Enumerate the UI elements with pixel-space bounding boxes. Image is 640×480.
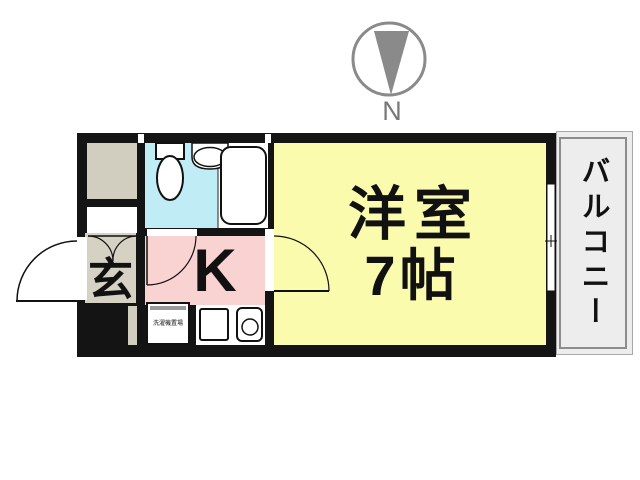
balcony-label: バルコニー [572,156,614,331]
kitchen-area: K [145,236,265,305]
pipe-shaft-strip [128,306,137,345]
shoe-cabinet [87,207,137,233]
kitchen-label: K [173,241,236,301]
balcony-inner-border: バルコニー [559,137,627,349]
bathtub-zone [218,143,268,228]
closet-area [87,143,137,199]
main-room: 洋室 7帖 [274,143,546,345]
north-label: N [377,96,407,127]
entrance-label: 玄 [85,256,136,303]
compass-circle-icon [353,23,425,95]
entrance-genkan: 玄 [85,233,136,303]
washing-machine-label: 洗濯機置場 [148,321,188,327]
main-room-size: 7帖 [364,247,459,306]
bathroom-area [145,143,218,228]
main-room-name: 洋室 [348,183,480,247]
floorplan-page: 玄 K 洋室 7帖 洗濯機置場 バルコニー N [0,0,640,480]
compass-needle-icon [374,31,409,95]
entrance-door-arc [17,241,77,301]
kitchen-counter [196,305,265,345]
washing-machine-top-bar [150,306,186,310]
washing-machine-area: 洗濯機置場 [146,302,190,345]
balcony-area: バルコニー [556,131,633,355]
